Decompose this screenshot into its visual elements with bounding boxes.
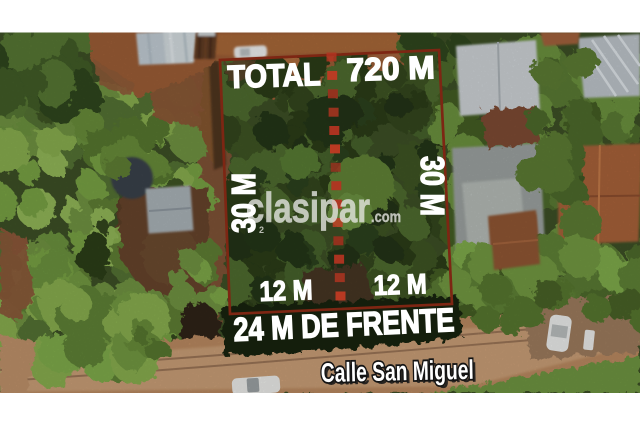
svg-text:TOTAL: TOTAL xyxy=(227,56,321,95)
svg-text:12 M: 12 M xyxy=(259,274,313,307)
svg-text:30 M: 30 M xyxy=(225,173,262,233)
svg-text:clasipar: clasipar xyxy=(246,184,370,231)
svg-text:Calle San Miguel: Calle San Miguel xyxy=(320,355,474,388)
svg-text:30 M: 30 M xyxy=(414,156,451,216)
svg-text:720 M: 720 M xyxy=(346,49,435,88)
svg-text:12 M: 12 M xyxy=(373,268,427,301)
svg-text:.com: .com xyxy=(371,209,401,226)
